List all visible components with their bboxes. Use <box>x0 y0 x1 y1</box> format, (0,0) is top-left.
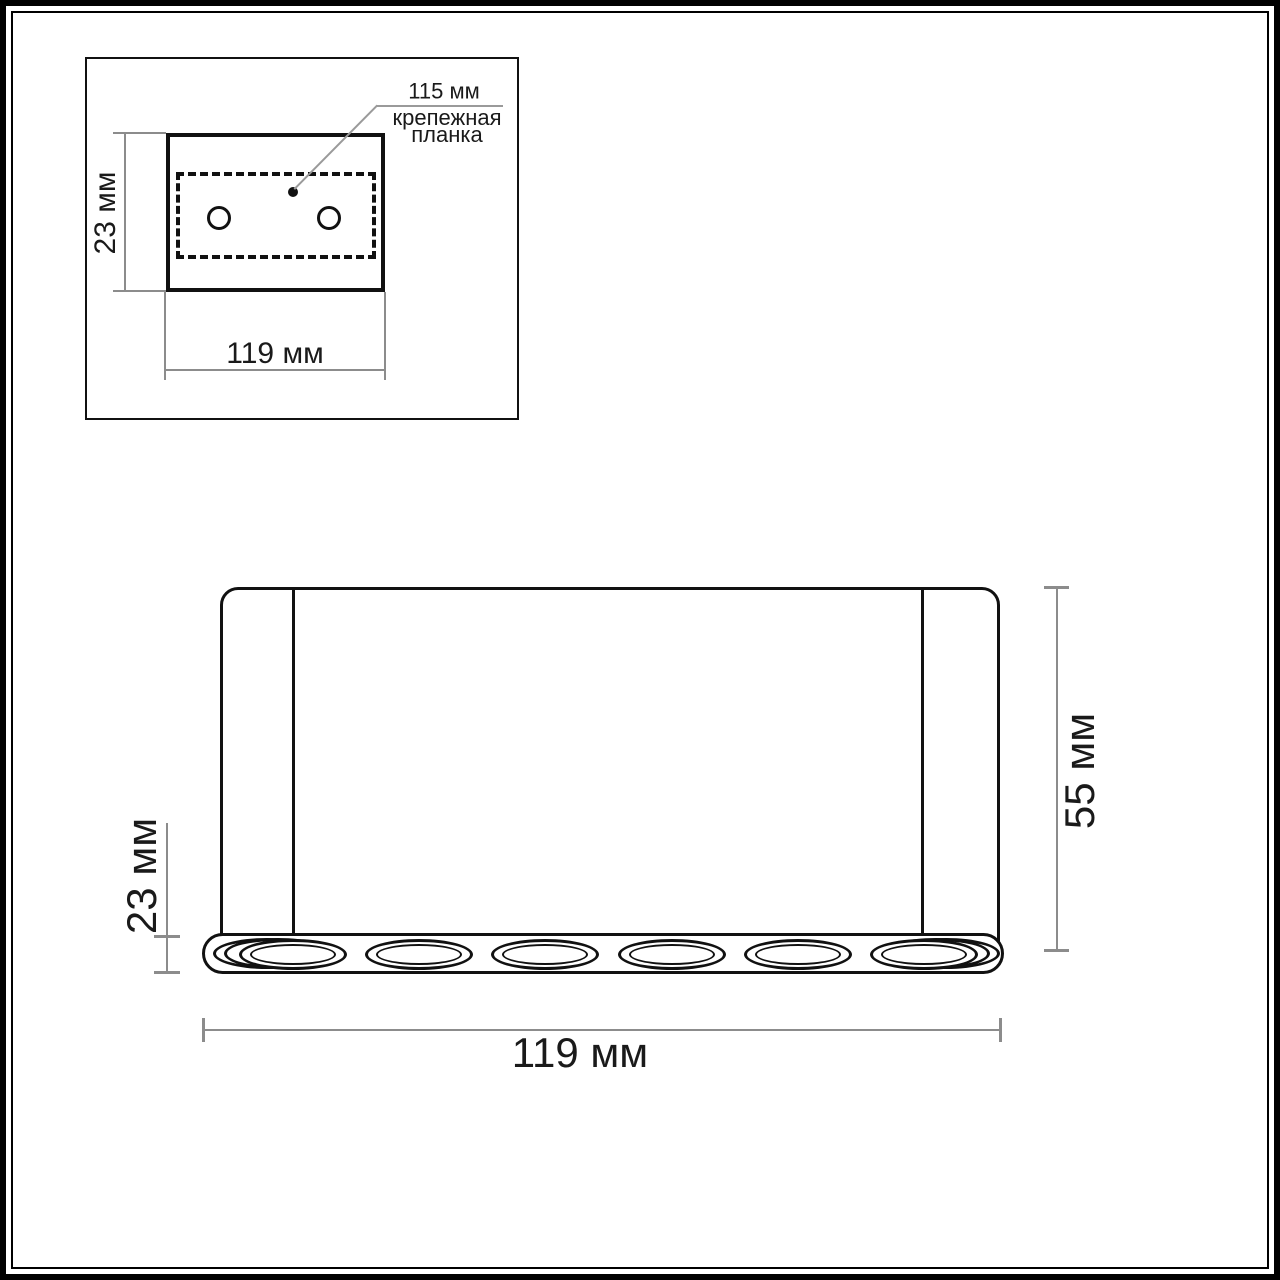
front-height-label: 55 мм <box>1056 713 1104 829</box>
lens-spot-inner <box>502 944 588 965</box>
front-view-body <box>220 587 1000 959</box>
lens-spot-inner <box>881 944 967 965</box>
technical-drawing-page: 115 мм крепежная планка 23 мм 119 мм 55 … <box>0 0 1280 1280</box>
front-view-edge-line-left <box>292 589 295 936</box>
front-base-dim-line <box>166 823 168 973</box>
front-width-label: 119 мм <box>512 1029 648 1077</box>
inset-height-ext-top <box>113 132 166 134</box>
inset-height-dim-line <box>124 133 126 292</box>
lens-spot-inner <box>376 944 462 965</box>
inset-width-ext-right <box>384 292 386 380</box>
inset-width-dim-line <box>165 369 385 371</box>
front-height-tick-bottom <box>1044 949 1069 952</box>
inset-width-ext-left <box>164 292 166 380</box>
lens-spot-inner <box>250 944 336 965</box>
front-width-tick-right <box>999 1018 1002 1042</box>
front-width-tick-left <box>202 1018 205 1042</box>
front-base-tick-top <box>154 935 180 938</box>
front-height-tick-top <box>1044 586 1069 589</box>
front-view-edge-line-right <box>921 589 924 936</box>
front-width-dim-line <box>203 1029 1000 1031</box>
lens-spot-inner <box>629 944 715 965</box>
front-base-tick-bottom <box>154 971 180 974</box>
inset-height-ext-bottom <box>113 290 166 292</box>
front-height-dim-line <box>1056 587 1058 951</box>
lens-spot-inner <box>755 944 841 965</box>
front-base-height-label: 23 мм <box>118 818 166 934</box>
